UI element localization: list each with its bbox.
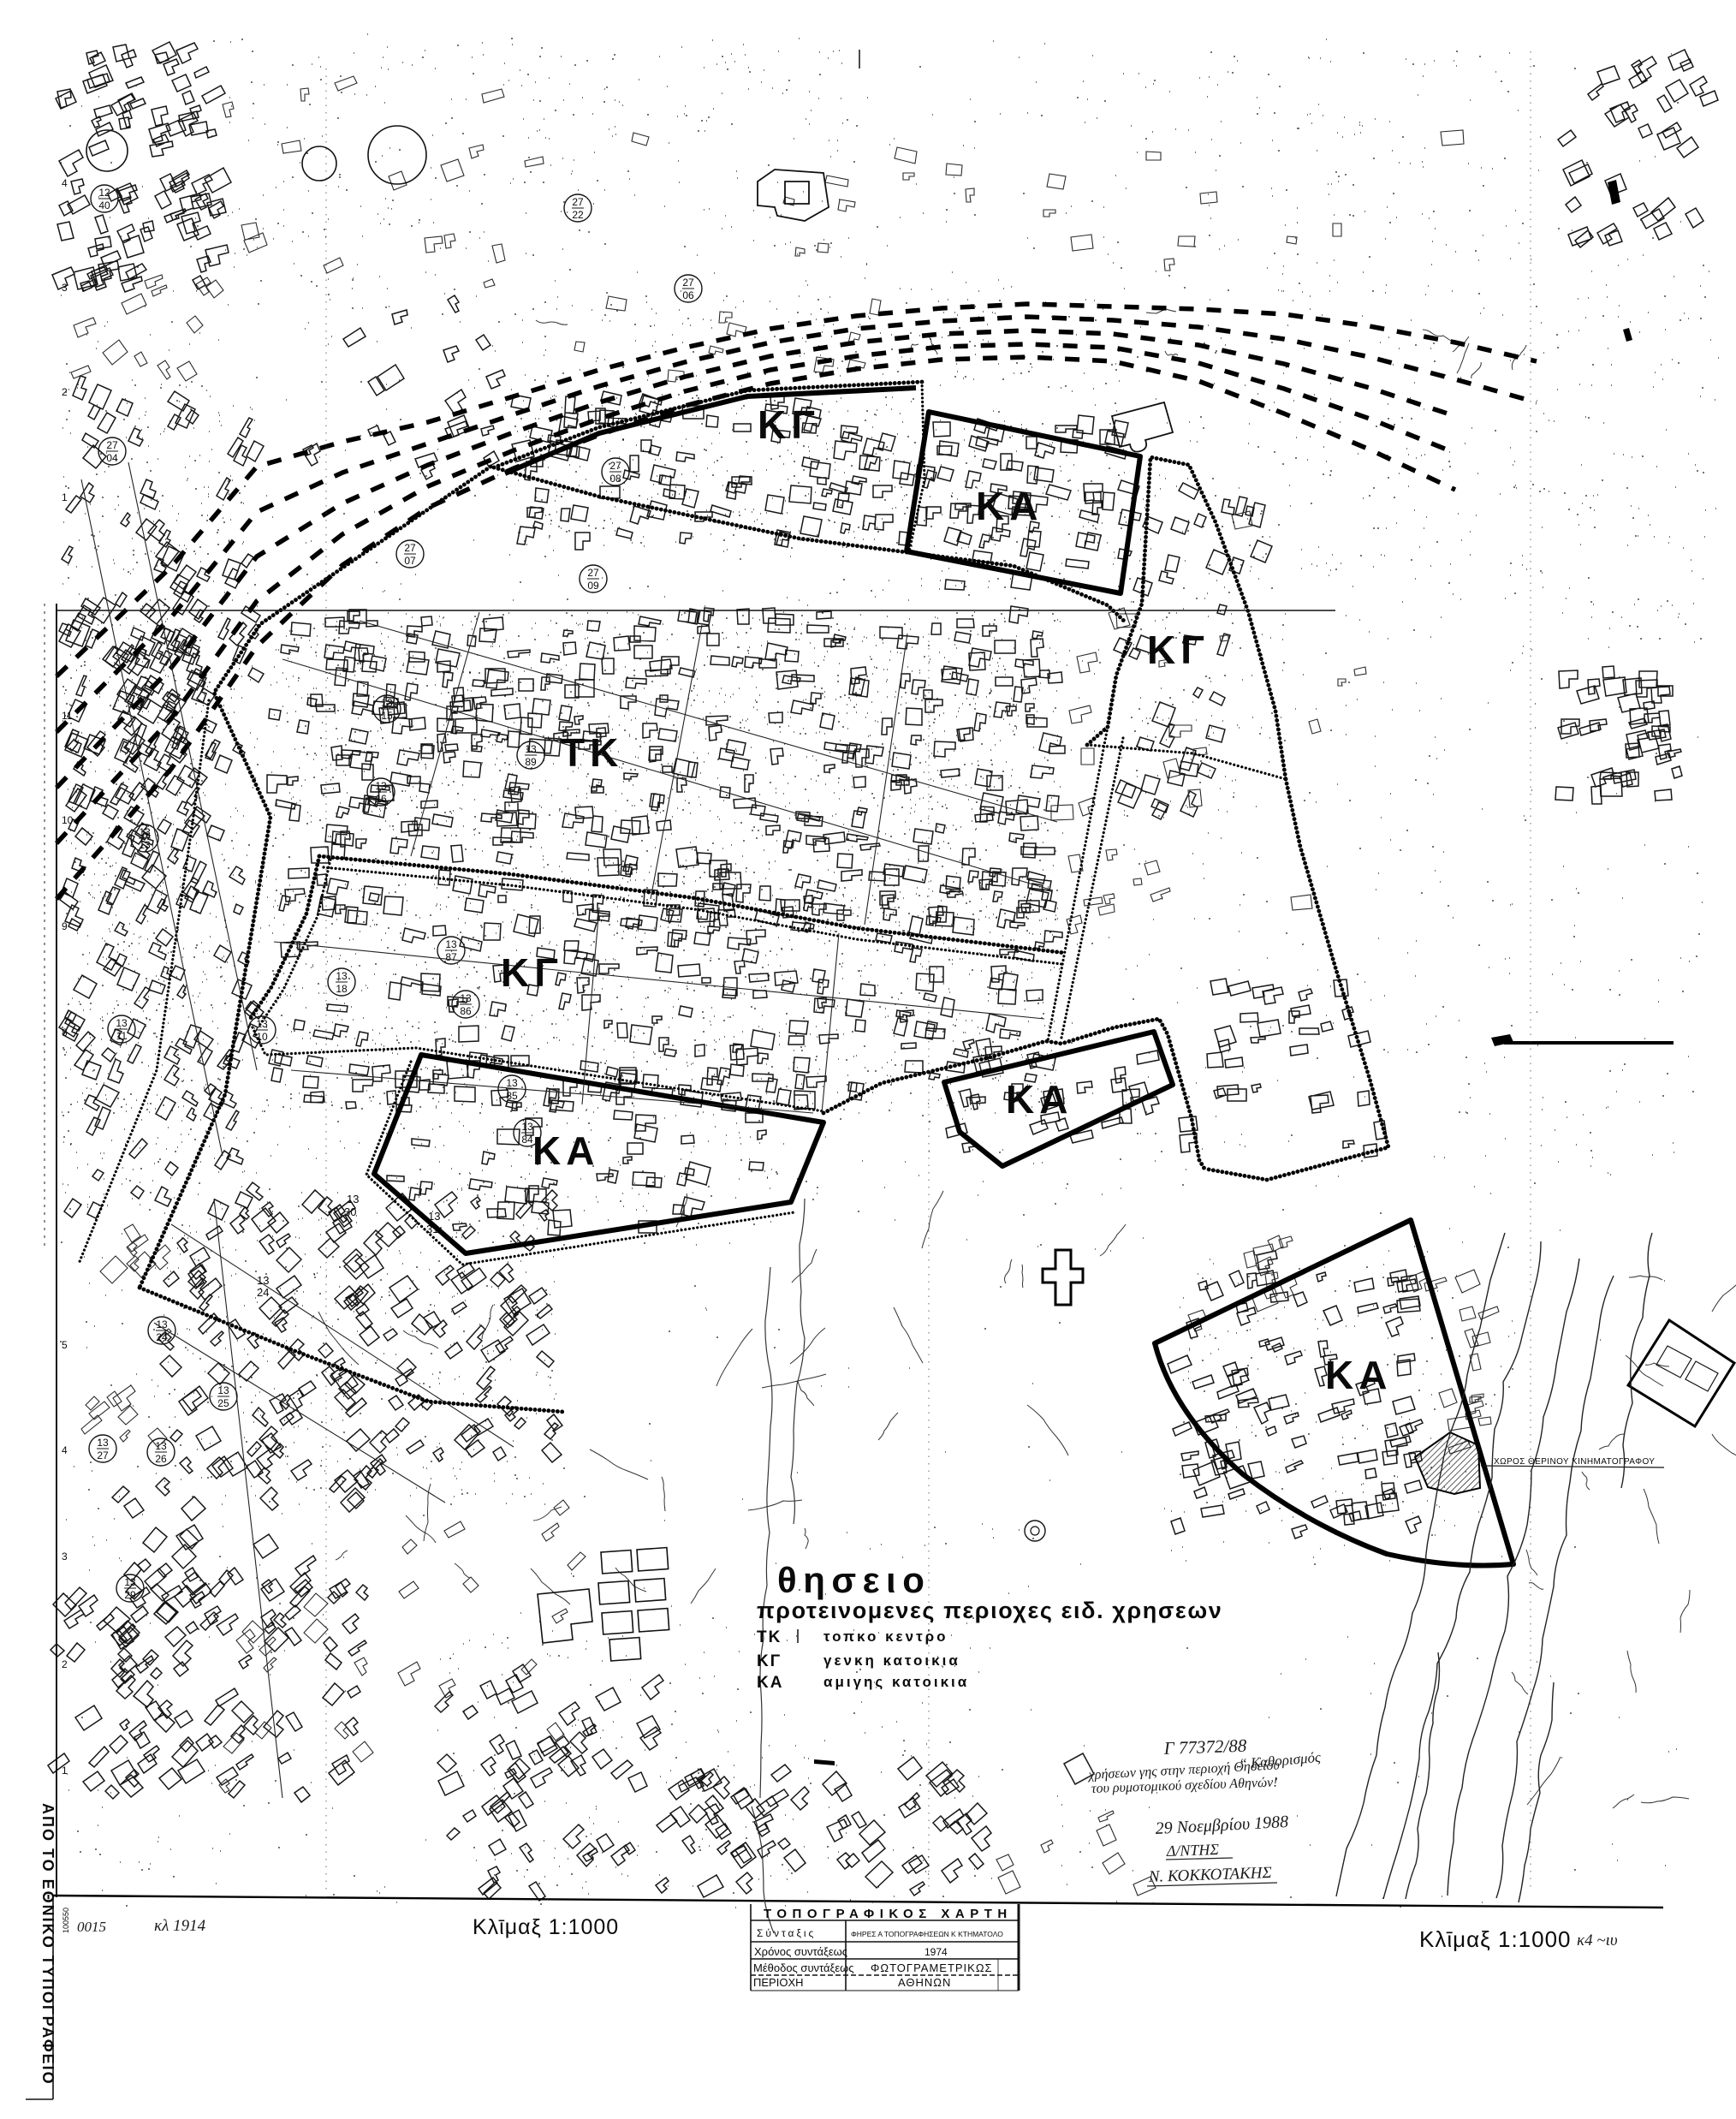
svg-text:ΚΓ: ΚΓ xyxy=(757,1652,782,1670)
svg-text:13: 13 xyxy=(116,1017,128,1029)
svg-text:13: 13 xyxy=(139,826,151,838)
svg-text:Κλῑμαξ 1:1000: Κλῑμαξ 1:1000 xyxy=(473,1915,619,1939)
svg-text:100550: 100550 xyxy=(62,1908,70,1933)
svg-text:85: 85 xyxy=(506,1090,518,1102)
svg-text:ΚΑ: ΚΑ xyxy=(1325,1353,1392,1397)
svg-text:ΚΑ: ΚΑ xyxy=(757,1674,783,1692)
svg-text:2: 2 xyxy=(62,1658,68,1670)
svg-text:13: 13 xyxy=(139,839,151,851)
svg-text:ΤΟΠΟΓΡΑΦΙΚΟΣ ΧΑΡΤΗ: ΤΟΠΟΓΡΑΦΙΚΟΣ ΧΑΡΤΗ xyxy=(764,1907,1013,1921)
svg-text:Κλῑμαξ 1:1000: Κλῑμαξ 1:1000 xyxy=(1419,1926,1572,1952)
svg-text:4: 4 xyxy=(62,177,68,189)
svg-text:10: 10 xyxy=(62,814,74,826)
svg-text:13: 13 xyxy=(506,1077,518,1089)
svg-text:13: 13 xyxy=(217,1384,229,1396)
svg-text:1974: 1974 xyxy=(924,1946,948,1958)
svg-text:29: 29 xyxy=(124,1589,136,1601)
svg-text:ΦΩΤΟΓΡΑΜΕΤΡΙΚΩΣ: ΦΩΤΟΓΡΑΜΕΤΡΙΚΩΣ xyxy=(871,1961,993,1974)
svg-text:13: 13 xyxy=(156,1318,168,1330)
svg-text:ΑΘΗΝΩΝ: ΑΘΗΝΩΝ xyxy=(898,1976,951,1989)
svg-text:ΑΠΟ ΤΟ ΕΘΝΙΚΟ ΤΥΠΟΓΡΑΦΕΙΟ: ΑΠΟ ΤΟ ΕΘΝΙΚΟ ΤΥΠΟΓΡΑΦΕΙΟ xyxy=(39,1803,56,2086)
svg-text:Μέθοδος συντάξεως: Μέθοδος συντάξεως xyxy=(753,1961,854,1974)
svg-text:13: 13 xyxy=(375,780,387,792)
svg-text:ΦΗΡΕΣ Α ΤΟΠΟΓΡΑΦΗΣΕΩΝ Κ ΚΤΗΜΑΤ: ΦΗΡΕΣ Α ΤΟΠΟΓΡΑΦΗΣΕΩΝ Κ ΚΤΗΜΑΤΟΛΟ xyxy=(851,1930,1003,1938)
svg-text:4: 4 xyxy=(62,1444,68,1456)
svg-text:γενκη κατοικια: γενκη κατοικια xyxy=(823,1652,960,1669)
svg-text:13: 13 xyxy=(381,697,393,709)
svg-text:07: 07 xyxy=(404,555,416,567)
svg-text:3: 3 xyxy=(62,1551,68,1562)
svg-text:08: 08 xyxy=(609,473,621,485)
svg-text:5: 5 xyxy=(62,1339,68,1351)
svg-text:26: 26 xyxy=(155,1453,167,1465)
svg-text:0015: 0015 xyxy=(77,1919,106,1935)
svg-text:1: 1 xyxy=(62,1765,68,1777)
svg-text:ΠΕΡΙΟΧΗ: ΠΕΡΙΟΧΗ xyxy=(753,1976,804,1989)
svg-text:11: 11 xyxy=(62,710,73,722)
svg-text:1: 1 xyxy=(62,491,68,503)
svg-text:τοπκο κεντρο: τοπκο κεντρο xyxy=(823,1628,948,1645)
svg-text:86: 86 xyxy=(460,1005,472,1017)
svg-text:ΚΓ: ΚΓ xyxy=(1147,628,1210,672)
svg-text:40: 40 xyxy=(98,199,110,211)
svg-text:ΧΩΡΟΣ ΘΕΡΙΝΟΥ ΚΙΝΗΜΑΤΟΓΡΑΦΟΥ: ΧΩΡΟΣ ΘΕΡΙΝΟΥ ΚΙΝΗΜΑΤΟΓΡΑΦΟΥ xyxy=(1494,1457,1655,1467)
svg-text:06: 06 xyxy=(682,289,694,301)
svg-text:87: 87 xyxy=(445,951,457,963)
svg-text:9: 9 xyxy=(62,920,68,932)
svg-text:13: 13 xyxy=(155,1440,167,1452)
svg-text:Χρόνος συντάξεως: Χρόνος συντάξεως xyxy=(754,1945,847,1958)
svg-text:ΚΑ: ΚΑ xyxy=(1006,1077,1073,1122)
svg-text:24: 24 xyxy=(257,1286,269,1299)
svg-text:11: 11 xyxy=(116,1030,128,1042)
svg-text:13: 13 xyxy=(257,1274,269,1287)
svg-text:13: 13 xyxy=(445,938,457,950)
svg-text:13: 13 xyxy=(124,1576,136,1588)
svg-text:ΤΚ: ΤΚ xyxy=(757,1628,782,1646)
svg-text:84: 84 xyxy=(521,1134,533,1146)
svg-text:27: 27 xyxy=(97,1449,109,1461)
svg-text:Γ 77372/88: Γ 77372/88 xyxy=(1162,1735,1247,1759)
svg-text:24: 24 xyxy=(156,1331,168,1343)
svg-text:27: 27 xyxy=(404,542,416,554)
svg-text:13: 13 xyxy=(460,992,472,1004)
svg-text:16: 16 xyxy=(375,793,387,805)
svg-text:ΚΓ: ΚΓ xyxy=(501,950,563,995)
svg-text:89: 89 xyxy=(525,756,537,768)
svg-text:27: 27 xyxy=(609,460,621,472)
svg-text:13: 13 xyxy=(521,1121,533,1133)
svg-text:18: 18 xyxy=(336,983,348,995)
svg-text:κ4 ~ιυ: κ4 ~ιυ xyxy=(1577,1932,1618,1949)
svg-text:27: 27 xyxy=(587,567,599,579)
svg-text:30: 30 xyxy=(344,1205,356,1218)
svg-text:3: 3 xyxy=(62,282,68,294)
svg-text:04: 04 xyxy=(106,452,118,464)
svg-text:ΤΚ: ΤΚ xyxy=(561,730,623,775)
svg-text:27: 27 xyxy=(572,196,584,208)
svg-text:2: 2 xyxy=(62,386,68,398)
svg-text:κλ 1914: κλ 1914 xyxy=(154,1917,206,1935)
svg-text:27: 27 xyxy=(106,439,118,451)
svg-text:22: 22 xyxy=(572,209,584,221)
svg-text:13: 13 xyxy=(525,743,537,755)
svg-text:15: 15 xyxy=(381,710,393,722)
svg-text:ΚΑ: ΚΑ xyxy=(532,1128,599,1173)
svg-text:ΚΑ: ΚΑ xyxy=(976,484,1043,528)
svg-text:Σύνταξις: Σύνταξις xyxy=(757,1927,816,1939)
svg-text:13: 13 xyxy=(347,1193,359,1205)
svg-text:αμιγης κατοικια: αμιγης κατοικια xyxy=(823,1674,969,1690)
svg-text:8: 8 xyxy=(62,1027,68,1039)
svg-text:ΚΓ: ΚΓ xyxy=(758,402,820,447)
svg-text:09: 09 xyxy=(587,580,599,592)
svg-text:13: 13 xyxy=(336,970,348,982)
svg-text:προτεινομενες περιοχες ειδ. χρ: προτεινομενες περιοχες ειδ. χρησεων xyxy=(757,1598,1222,1623)
svg-text:13: 13 xyxy=(428,1210,440,1223)
svg-text:25: 25 xyxy=(217,1397,229,1409)
svg-text:10: 10 xyxy=(256,1031,268,1043)
svg-text:12: 12 xyxy=(98,187,110,199)
svg-text:Δ/ΝΤΗΣ: Δ/ΝΤΗΣ xyxy=(1165,1841,1219,1860)
svg-text:27: 27 xyxy=(682,277,694,289)
svg-text:13: 13 xyxy=(256,1018,268,1030)
svg-text:31: 31 xyxy=(426,1223,438,1235)
svg-text:θησειο: θησειο xyxy=(777,1560,930,1600)
svg-text:13: 13 xyxy=(97,1437,109,1449)
